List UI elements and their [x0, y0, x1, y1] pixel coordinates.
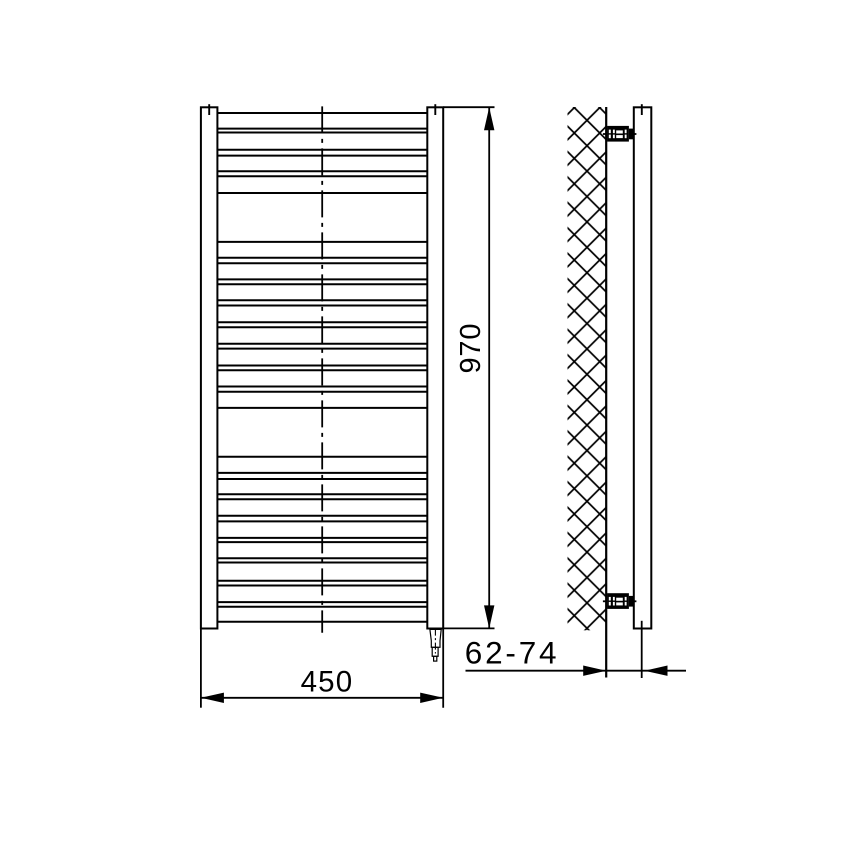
- svg-text:62-74: 62-74: [465, 635, 560, 671]
- svg-text:450: 450: [301, 665, 354, 698]
- svg-text:970: 970: [455, 323, 487, 374]
